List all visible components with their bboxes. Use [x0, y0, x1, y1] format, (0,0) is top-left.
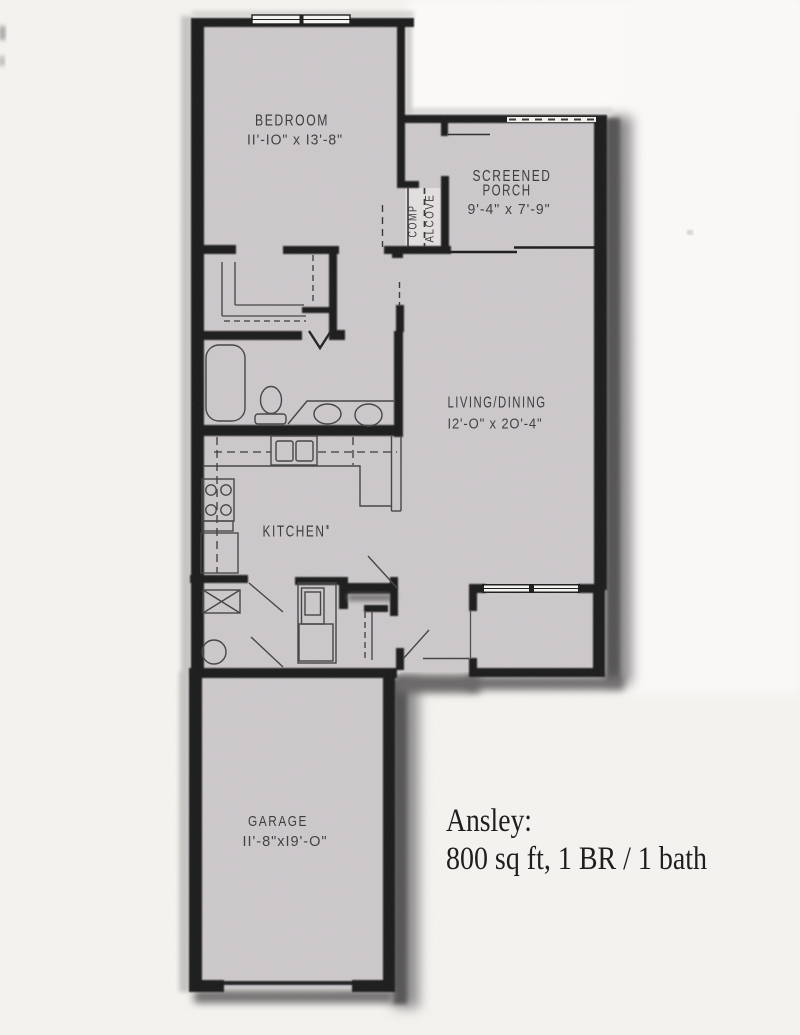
svg-text:Ansley:: Ansley:	[446, 803, 532, 839]
svg-text:800 sq ft, 1 BR / 1 bath: 800 sq ft, 1 BR / 1 bath	[446, 841, 707, 877]
